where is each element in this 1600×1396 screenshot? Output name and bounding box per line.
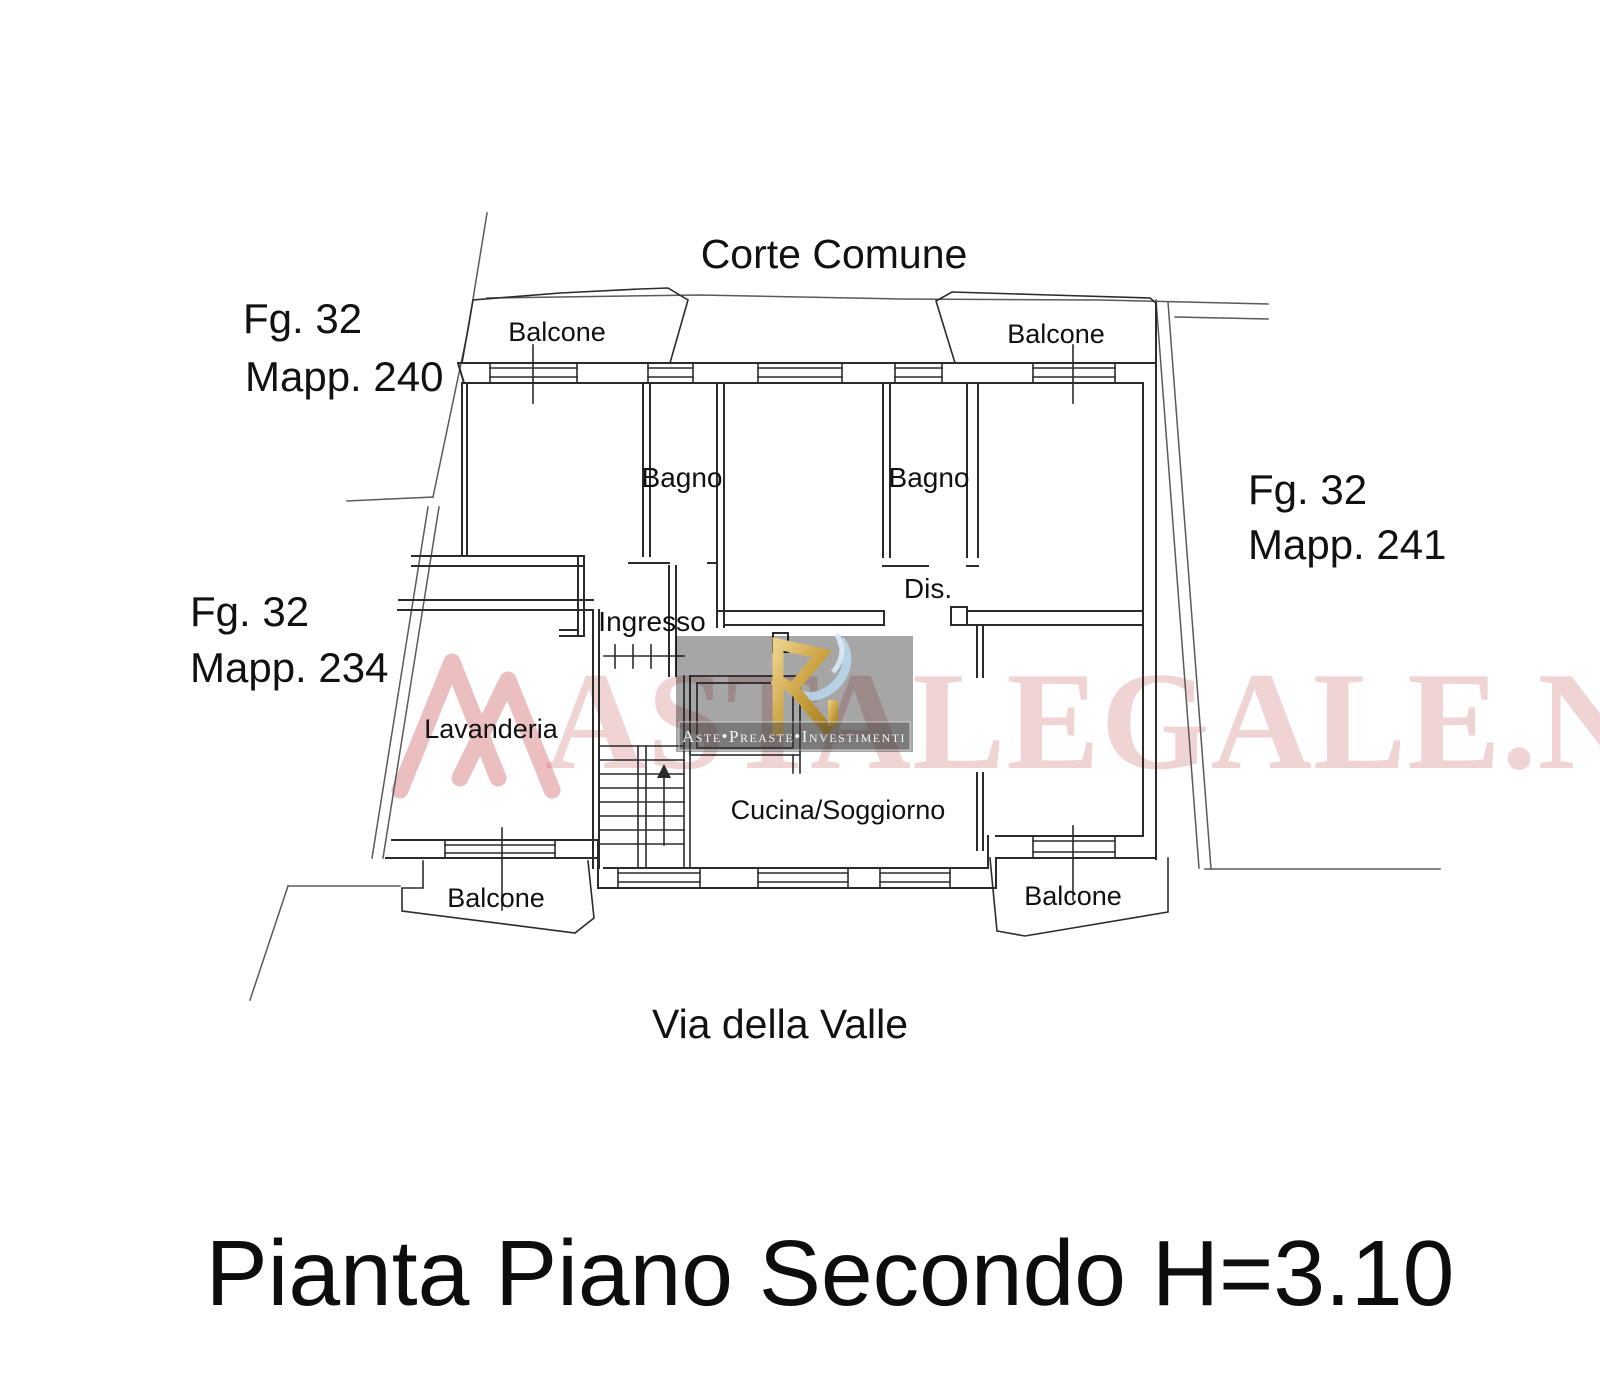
room-balcone-tr: Balcone <box>1007 319 1105 349</box>
floor-plan-svg: ASTALEGALE.NET <box>0 0 1600 1396</box>
page-title: Pianta Piano Secondo H=3.10 <box>206 1221 1455 1325</box>
parcel-right-mapp: Mapp. 241 <box>1248 521 1446 568</box>
room-ingresso: Ingresso <box>598 606 705 637</box>
room-balcone-bl: Balcone <box>447 883 545 913</box>
room-bagno-right: Bagno <box>889 462 970 493</box>
room-lavanderia: Lavanderia <box>424 714 559 744</box>
room-balcone-br: Balcone <box>1024 881 1122 911</box>
watermark-caption-band: Aste•Preaste•Investimenti <box>679 722 910 750</box>
parcel-mid-left-fg: Fg. 32 <box>190 588 309 635</box>
watermark-caption: Aste•Preaste•Investimenti <box>682 727 906 746</box>
room-balcone-tl: Balcone <box>508 317 606 347</box>
parcel-top-left-mapp: Mapp. 240 <box>245 353 443 400</box>
watermark-astalegale: ASTALEGALE.NET <box>400 644 1600 799</box>
parcel-mid-left-mapp: Mapp. 234 <box>190 644 388 691</box>
courtyard-label: Corte Comune <box>701 231 968 277</box>
parcel-right-fg: Fg. 32 <box>1248 466 1367 513</box>
room-dis: Dis. <box>904 573 952 604</box>
parcel-top-left-fg: Fg. 32 <box>243 295 362 342</box>
floor-plan-page: ASTALEGALE.NET <box>0 0 1600 1396</box>
room-cucina: Cucina/Soggiorno <box>731 795 946 825</box>
room-bagno-left: Bagno <box>642 462 723 493</box>
street-label: Via della Valle <box>652 1001 908 1047</box>
